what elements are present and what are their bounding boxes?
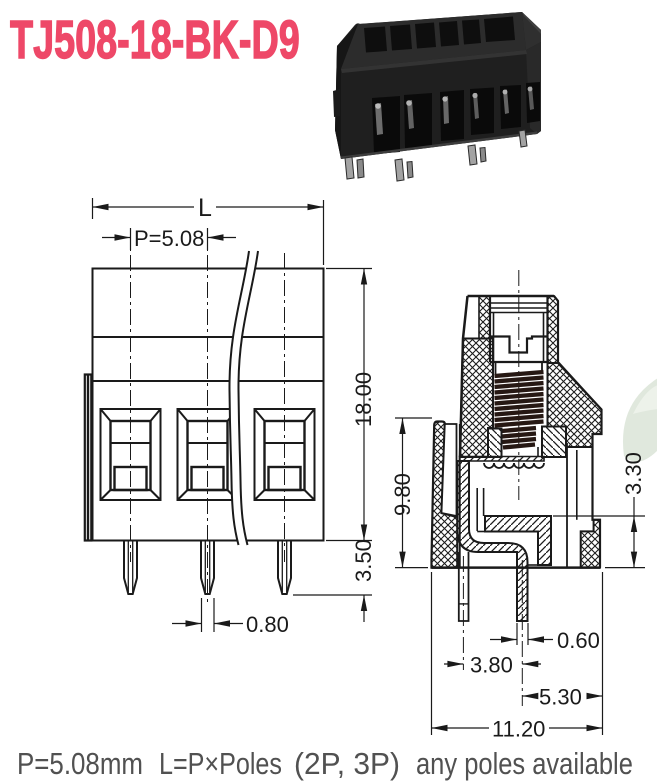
svg-text:any poles available: any poles available	[416, 747, 633, 781]
svg-text:18.00: 18.00	[351, 372, 376, 427]
svg-text:3.50: 3.50	[351, 539, 376, 582]
svg-text:0.60: 0.60	[557, 628, 600, 653]
svg-text:L: L	[198, 194, 212, 222]
svg-text:P=5.08: P=5.08	[134, 226, 204, 251]
svg-text:11.20: 11.20	[492, 717, 545, 742]
svg-text:3.30: 3.30	[621, 452, 646, 495]
svg-text:L=P×Poles: L=P×Poles	[159, 745, 282, 780]
svg-text:P=5.08mm: P=5.08mm	[17, 747, 143, 781]
svg-text:0.80: 0.80	[246, 612, 289, 637]
svg-text:3.80: 3.80	[470, 653, 513, 678]
svg-text:TJ508-18-BK-D9: TJ508-18-BK-D9	[10, 9, 300, 69]
svg-text:(2P, 3P): (2P, 3P)	[294, 747, 400, 781]
svg-text:9.80: 9.80	[390, 473, 415, 516]
svg-text:5.30: 5.30	[539, 685, 582, 710]
